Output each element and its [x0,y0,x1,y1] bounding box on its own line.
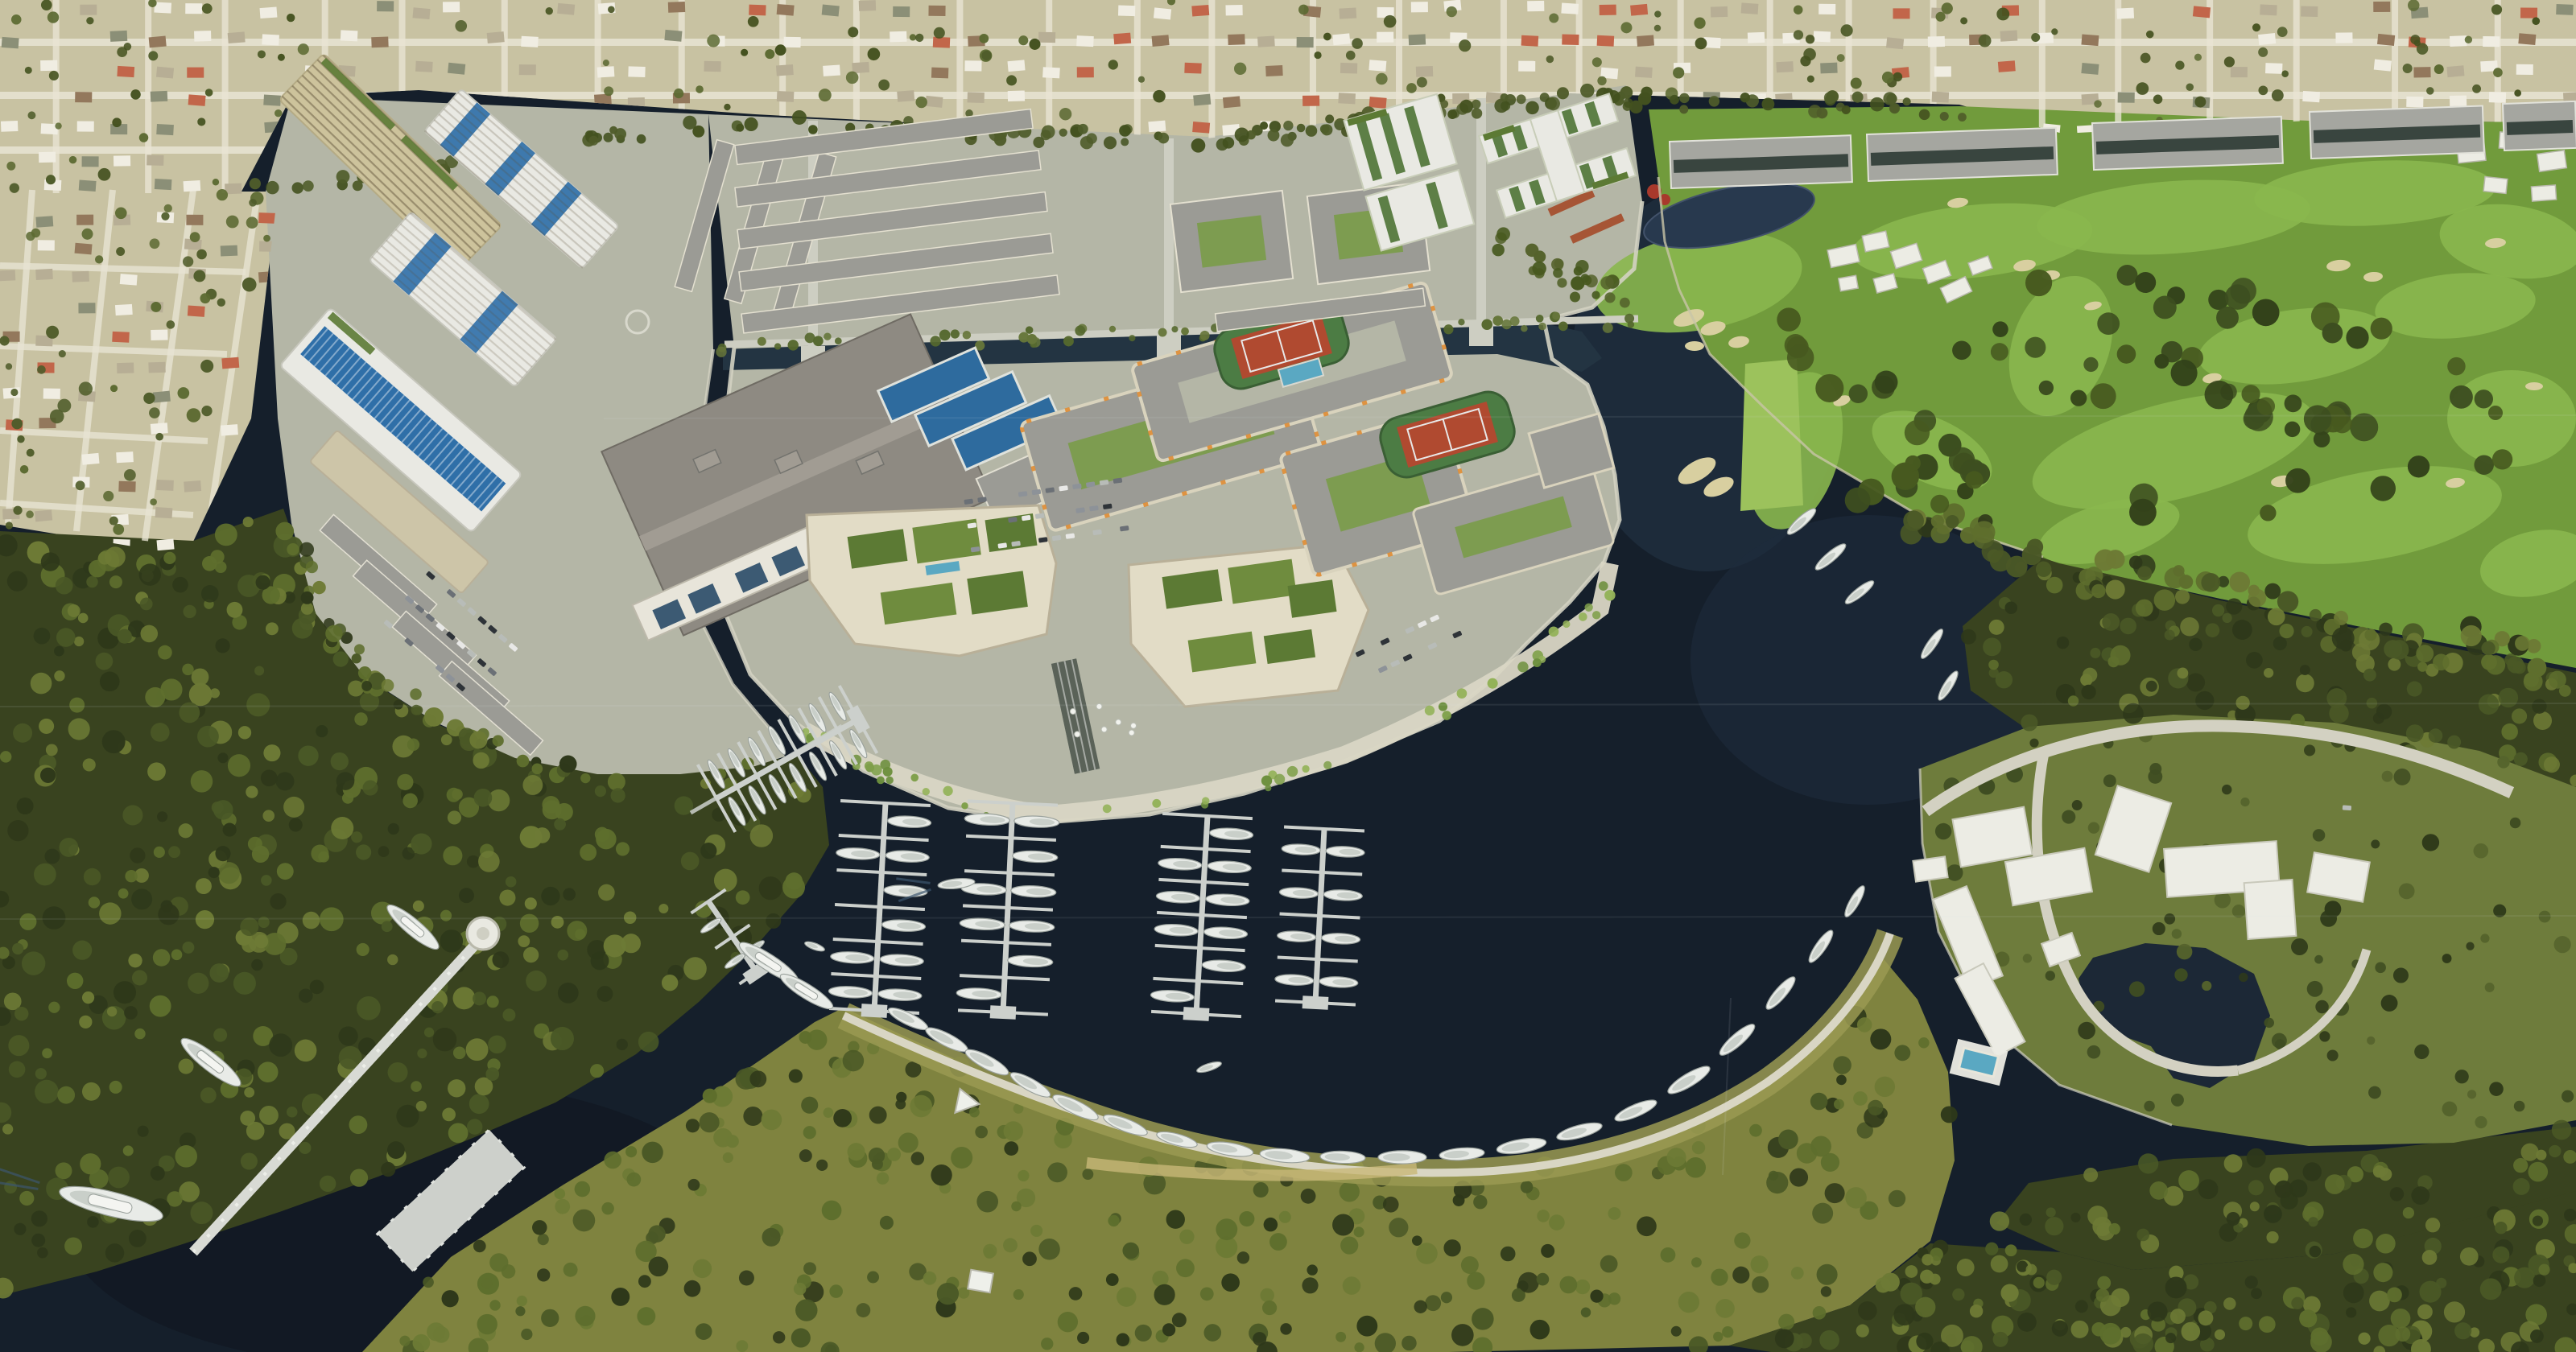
courtyard-townhomes-1 [1170,191,1293,292]
lighthouse [477,927,489,940]
scene-svg [0,0,2576,1352]
aerial-rendering-canvas [0,0,2576,1352]
power [1378,1151,1426,1164]
shore-pavilion-2 [968,1270,993,1292]
roundabout [626,311,649,333]
parking-lot [2343,805,2351,810]
